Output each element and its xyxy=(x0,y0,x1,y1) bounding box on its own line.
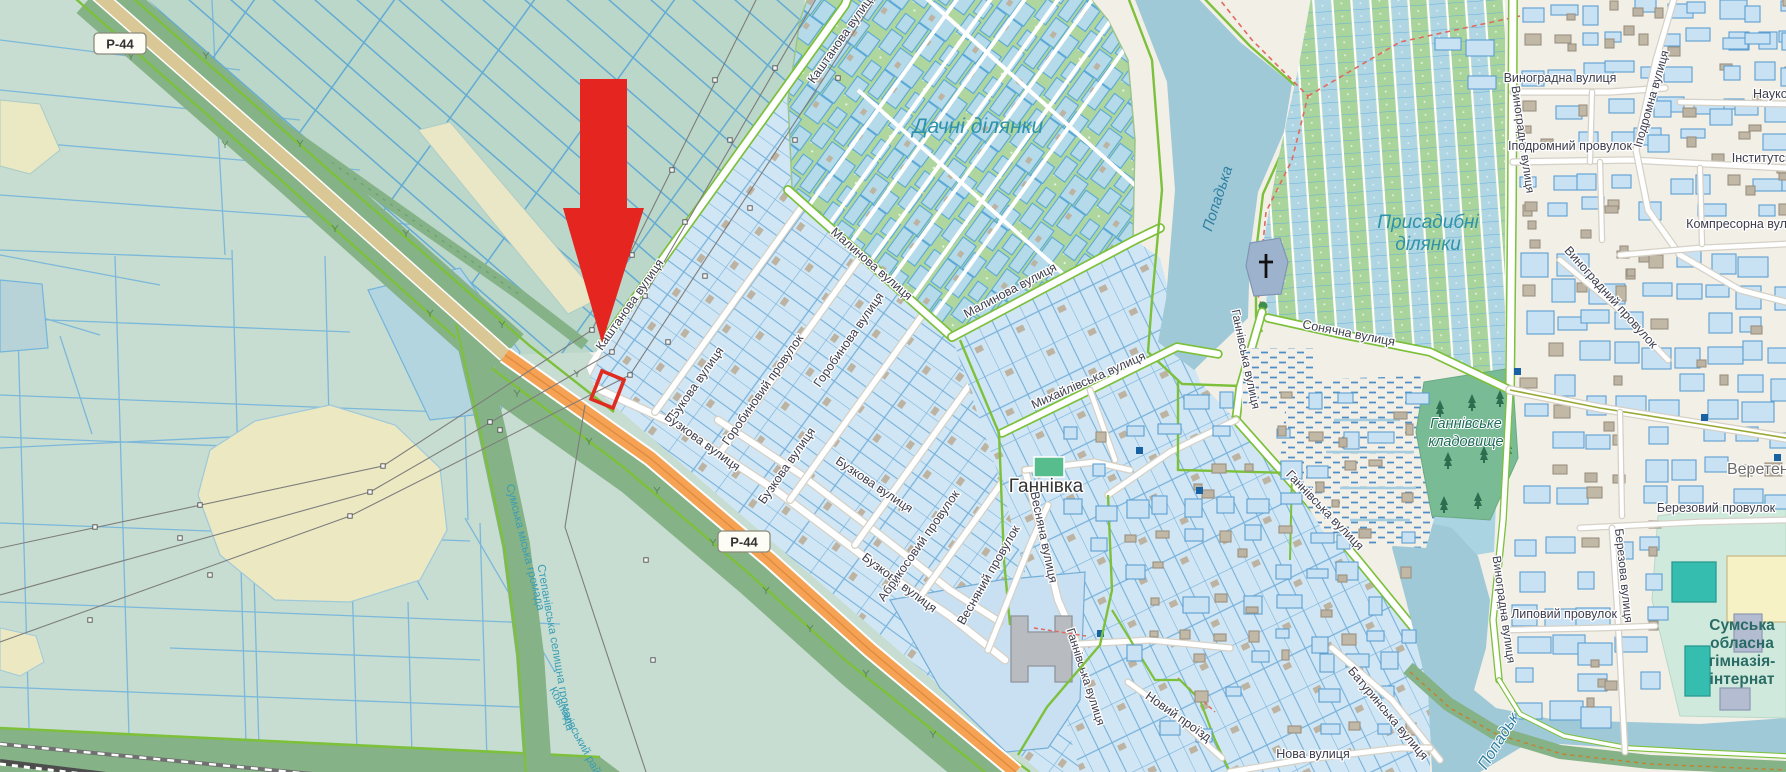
svg-text:Сумська: Сумська xyxy=(1709,617,1775,634)
svg-text:гімназія-: гімназія- xyxy=(1709,653,1776,670)
svg-text:Присадибні: Присадибні xyxy=(1377,212,1479,233)
svg-text:Ганнівка: Ганнівка xyxy=(1009,476,1084,497)
svg-text:Нова вулиця: Нова вулиця xyxy=(1276,747,1349,761)
svg-text:обласна: обласна xyxy=(1710,635,1774,652)
svg-text:Березовий провулок: Березовий провулок xyxy=(1657,501,1776,515)
svg-text:Наукова: Наукова xyxy=(1753,87,1786,101)
svg-text:кладовище: кладовище xyxy=(1428,434,1503,450)
svg-text:ділянки: ділянки xyxy=(1395,234,1461,255)
svg-text:інтернат: інтернат xyxy=(1710,671,1775,688)
svg-text:Інститутська: Інститутська xyxy=(1732,151,1786,165)
svg-text:Веретенівка: Веретенівка xyxy=(1727,461,1786,478)
svg-text:Дачні ділянки: Дачні ділянки xyxy=(911,115,1044,138)
svg-text:Ганнівське: Ганнівське xyxy=(1430,416,1502,432)
svg-text:Іподромний провулок: Іподромний провулок xyxy=(1508,139,1632,153)
svg-text:Р-44: Р-44 xyxy=(730,535,758,550)
svg-text:Компресорна вулиця: Компресорна вулиця xyxy=(1686,217,1786,231)
svg-text:Р-44: Р-44 xyxy=(106,37,134,52)
svg-text:Виноградна вулиця: Виноградна вулиця xyxy=(1504,71,1617,85)
svg-text:Липовий провулок: Липовий провулок xyxy=(1511,607,1617,621)
